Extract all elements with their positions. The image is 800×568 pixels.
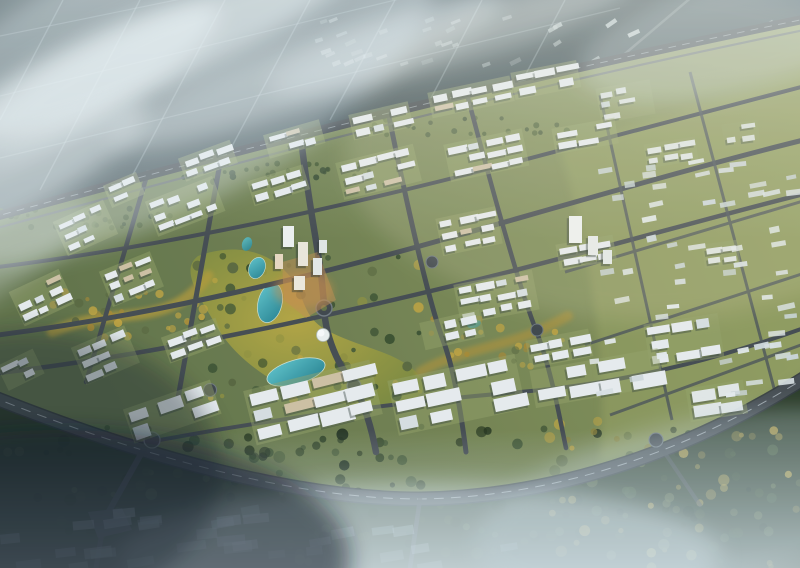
scene-canvas: Aerial masterplan rendering of a planned… xyxy=(0,0,800,568)
scene-root xyxy=(0,0,800,568)
blue-cast-overlay xyxy=(0,0,800,568)
masterplan-render: Aerial masterplan rendering of a planned… xyxy=(0,0,800,568)
